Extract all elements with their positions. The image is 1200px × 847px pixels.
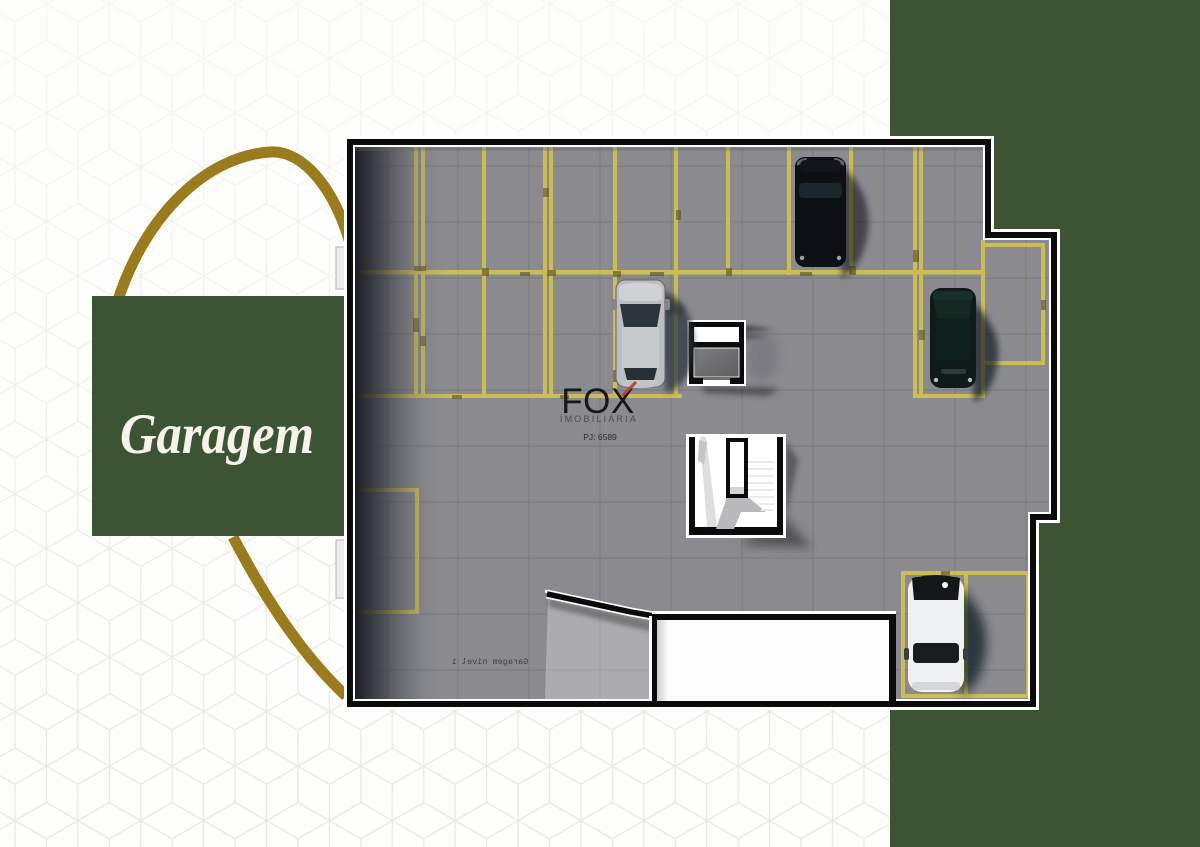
svg-text:Garagem: Garagem xyxy=(120,403,314,466)
svg-text:Garagem nivel 1: Garagem nivel 1 xyxy=(452,657,529,667)
svg-text:PJ: 6589: PJ: 6589 xyxy=(583,432,617,442)
svg-text:IMOBILIÁRIA: IMOBILIÁRIA xyxy=(560,414,638,424)
